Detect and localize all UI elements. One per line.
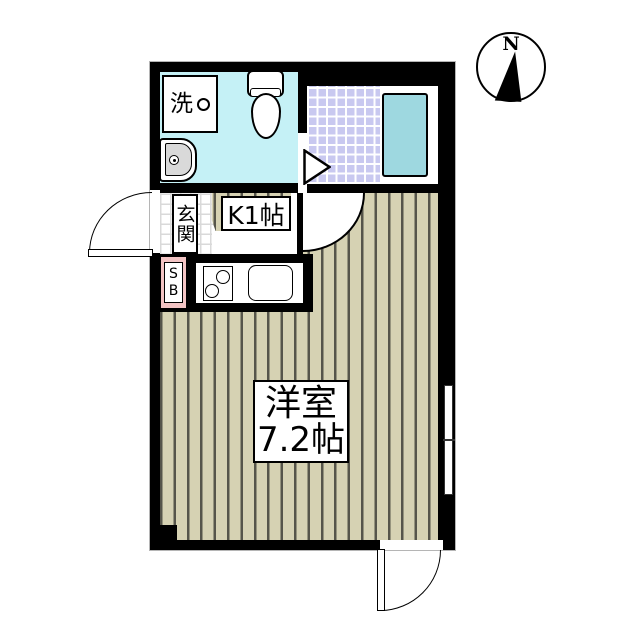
- sink-bowl-icon: [165, 143, 192, 176]
- floor-plan-page: 洗 玄関 K1帖: [0, 0, 640, 640]
- shoe-box-b: B: [169, 283, 179, 299]
- kitchen-label: K1帖: [221, 196, 291, 231]
- washer-drum-icon: [197, 98, 210, 111]
- toilet-bowl-icon: [251, 93, 281, 139]
- shoe-box-s: S: [169, 266, 178, 282]
- window-icon: [444, 385, 453, 495]
- washing-machine-icon: 洗: [162, 75, 218, 133]
- shoe-box: S B: [161, 257, 186, 308]
- stove-burner-icon: [216, 270, 230, 284]
- entrance-label: 玄関: [172, 194, 198, 254]
- washer-label: 洗: [170, 93, 193, 116]
- kitchen-counter-block: S B: [150, 254, 313, 312]
- wall-pillar: [160, 525, 177, 540]
- entrance-door-leaf: [88, 249, 153, 257]
- main-room-label: 洋室 7.2帖: [253, 380, 349, 463]
- main-room-name: 洋室: [265, 385, 337, 423]
- window-sash-divider: [443, 439, 455, 441]
- bathroom-sink-icon: [159, 138, 197, 182]
- kitchen-counter: [196, 263, 303, 303]
- shoe-box-label: S B: [164, 262, 183, 303]
- compass-north-label: N: [478, 33, 544, 55]
- bathtub-icon: [382, 93, 428, 177]
- bathroom-door-icon: [303, 149, 331, 185]
- balcony-door-opening: [380, 540, 443, 550]
- kitchen-sink-icon: [248, 265, 293, 301]
- bathtub-surround: [380, 86, 438, 184]
- stove-burner-icon: [205, 284, 219, 298]
- balcony-door-leaf: [377, 549, 385, 611]
- washroom-area: 洗: [160, 72, 298, 183]
- stove-icon: [203, 266, 233, 301]
- sink-faucet-icon: [169, 155, 179, 165]
- compass-rose: N: [476, 32, 546, 102]
- floor-plan: 洗 玄関 K1帖: [150, 62, 455, 550]
- entrance-door-swing-arc: [89, 192, 152, 253]
- main-room-size: 7.2帖: [257, 423, 345, 459]
- balcony-door-swing-arc: [380, 550, 441, 611]
- kitchen-walkway: [212, 231, 297, 254]
